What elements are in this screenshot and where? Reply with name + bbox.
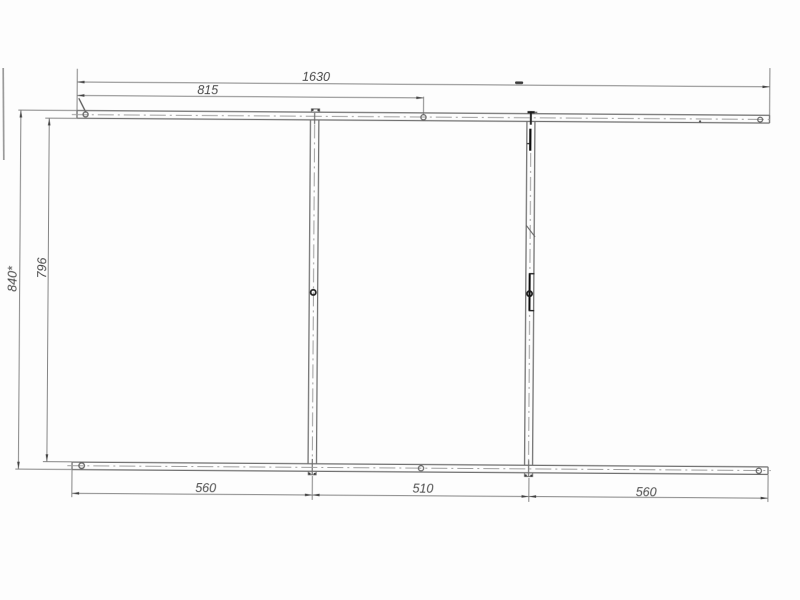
svg-text:560: 560 bbox=[636, 485, 657, 499]
svg-text:840*: 840* bbox=[6, 265, 20, 292]
svg-text:1630: 1630 bbox=[302, 70, 330, 84]
svg-text:796: 796 bbox=[35, 257, 49, 278]
svg-text:815: 815 bbox=[197, 83, 218, 97]
svg-text:560: 560 bbox=[195, 481, 216, 495]
svg-text:510: 510 bbox=[413, 482, 434, 496]
